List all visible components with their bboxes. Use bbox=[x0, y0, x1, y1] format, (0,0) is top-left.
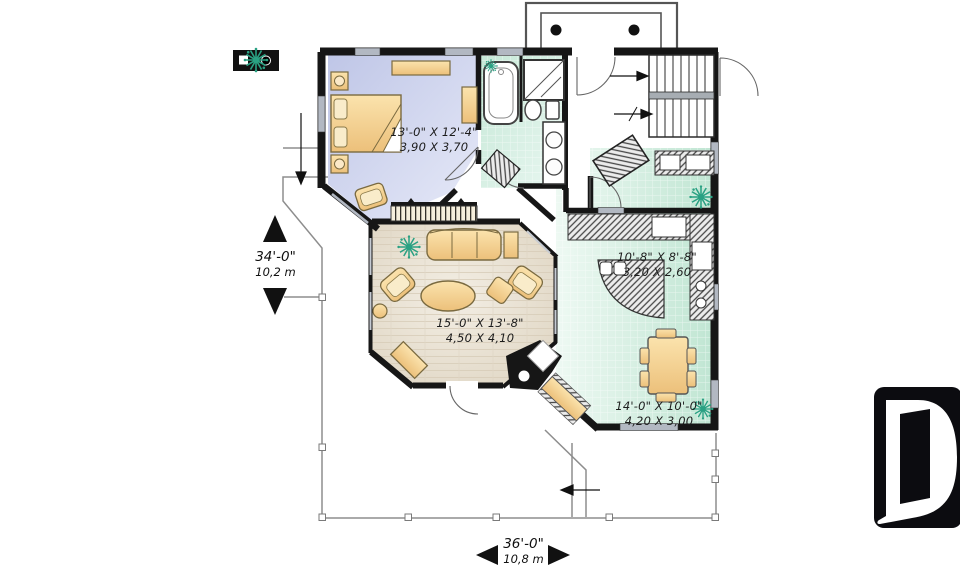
deck-door-opening bbox=[446, 381, 478, 390]
bedroom-dimensions-label: 13'-0" X 12'-4" 3,90 X 3,70 bbox=[369, 125, 499, 154]
nightstand-icon bbox=[331, 155, 348, 173]
end-table-icon bbox=[504, 232, 518, 258]
side-planter bbox=[233, 48, 279, 73]
dining-table-icon bbox=[640, 329, 696, 402]
floor-plan-page: 13'-0" X 12'-4" 3,90 X 3,70 15'-0" X 13'… bbox=[0, 0, 960, 569]
coffee-table-icon bbox=[421, 281, 475, 311]
dresser-icon bbox=[392, 61, 450, 75]
nightstand-icon bbox=[331, 72, 348, 90]
corner-shower-icon bbox=[524, 60, 564, 100]
side-table-icon bbox=[373, 304, 387, 318]
stair-direction-arrows bbox=[610, 72, 652, 122]
floor-plan-drawing bbox=[0, 0, 960, 569]
double-vanity-icon bbox=[543, 122, 565, 184]
overall-width-label: 36'-0" 10,8 m bbox=[481, 536, 566, 566]
kitchen-dimensions-label: 10'-8" X 8'-8" 3,20 X 2,60 bbox=[592, 250, 722, 279]
overall-depth-label: 34'-0" 10,2 m bbox=[233, 249, 318, 279]
dining-room-dimensions-label: 14'-0" X 10'-0" 4,20 X 3,00 bbox=[594, 399, 724, 428]
staircase bbox=[610, 55, 714, 137]
living-room-dimensions-label: 15'-0" X 13'-8" 4,50 X 4,10 bbox=[415, 316, 545, 345]
sofa-icon bbox=[427, 229, 501, 261]
brand-logo bbox=[874, 387, 960, 528]
bathtub-icon bbox=[484, 62, 518, 124]
front-porch bbox=[526, 3, 677, 53]
porch-post bbox=[551, 25, 562, 36]
front-door-opening bbox=[572, 46, 614, 57]
porch-post bbox=[629, 25, 640, 36]
tall-dresser-icon bbox=[462, 87, 477, 123]
piano-icon bbox=[391, 202, 477, 221]
